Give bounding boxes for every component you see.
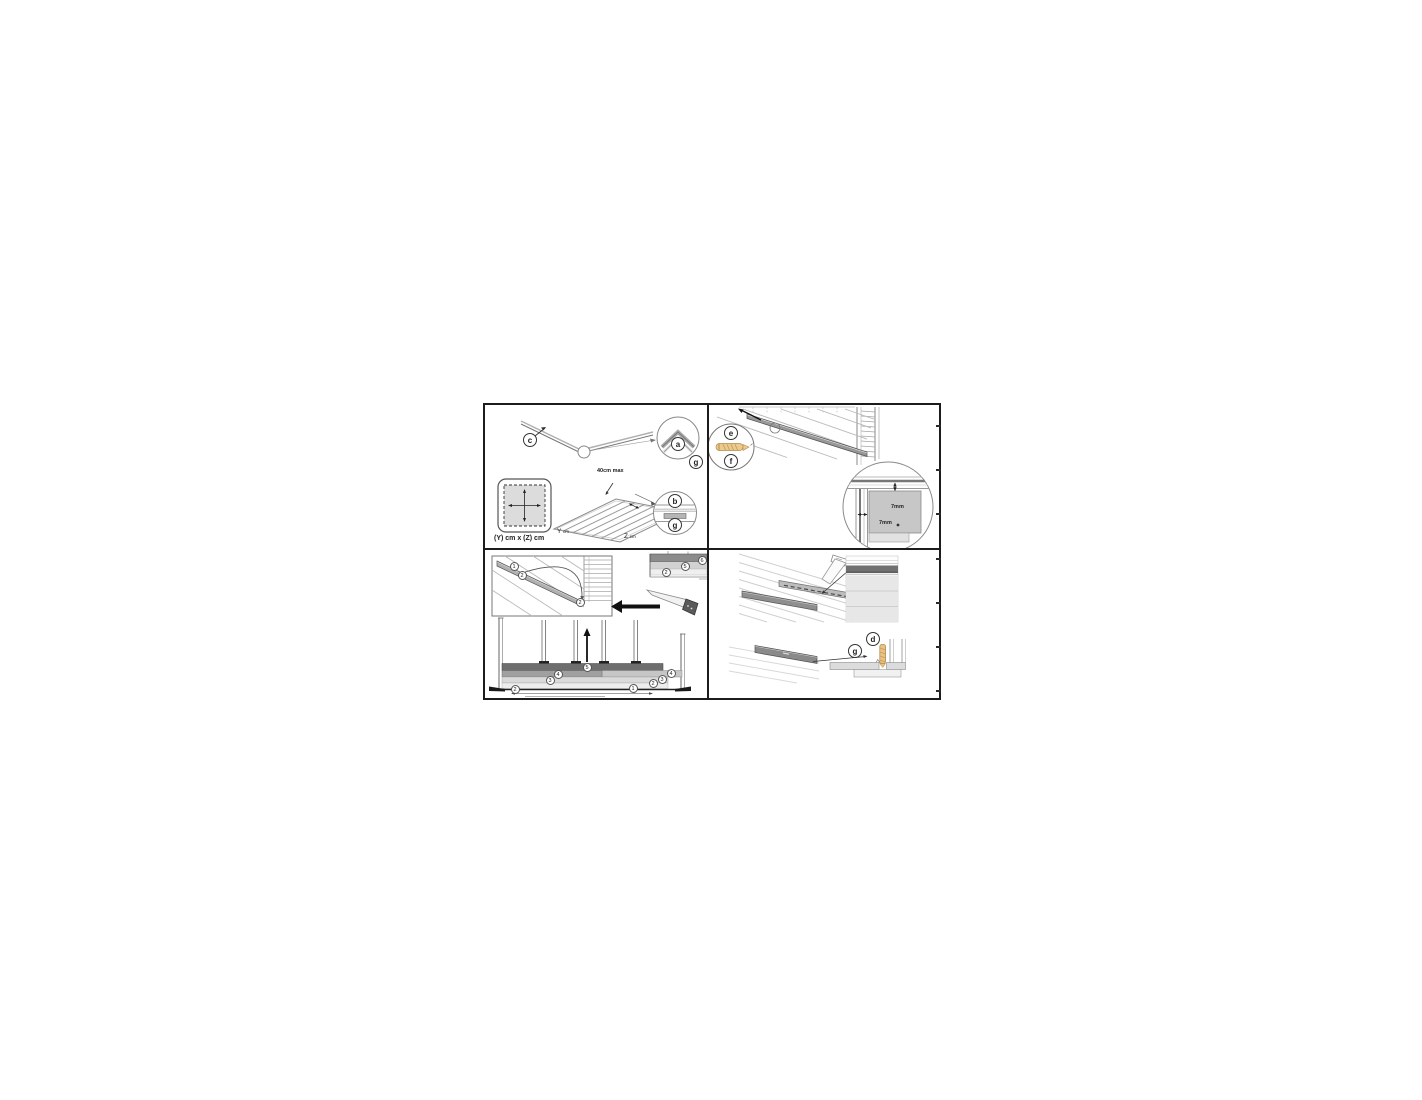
board-number-callout: 4 <box>667 669 676 678</box>
binding-tick <box>936 469 941 471</box>
binding-tick <box>936 690 941 692</box>
board-number-callout: 3 <box>546 676 555 685</box>
elevation-number-5: 5 <box>585 665 588 671</box>
strip-profile-detail <box>846 556 898 622</box>
finishing-strip-drawing <box>709 550 939 698</box>
callout-f: f <box>724 454 738 468</box>
elevation-number-3-left: 3 <box>548 678 551 684</box>
elevation-number-1-right: 1 <box>631 686 634 692</box>
board-number-callout: 2 <box>649 679 658 688</box>
board-number-callout: 1 <box>629 684 638 693</box>
wall-studs <box>542 620 638 663</box>
callout-e: e <box>724 426 738 440</box>
board-number-callout: 6 <box>698 556 707 565</box>
binding-tick <box>936 513 941 515</box>
binding-tick <box>936 646 941 648</box>
callout-g-joist: g <box>668 518 682 532</box>
panel-finishing-strip: g d <box>709 550 939 698</box>
gap-top-label: 7mm <box>891 504 904 510</box>
axis-y-unit: cm <box>563 529 569 534</box>
joist-spacing-note: 40cm max <box>597 468 624 474</box>
callout-e-label: e <box>729 429 733 438</box>
axis-z-letter: Z <box>624 533 628 540</box>
section-number-5: 5 <box>683 564 686 570</box>
callout-g-corner-label: g <box>694 458 699 467</box>
callout-g-corner: g <box>689 455 703 469</box>
callout-c-label: c <box>528 436 532 445</box>
footprint-dimensions-label: (Y) cm x (Z) cm <box>494 535 544 542</box>
elevation-number-3-right: 3 <box>660 677 663 683</box>
axis-z-unit: cm <box>630 534 636 539</box>
board-number-callout: 5 <box>681 562 690 571</box>
footprint-square <box>498 479 551 532</box>
wall-slats <box>861 411 875 457</box>
board-number-callout: 1 <box>510 562 519 571</box>
callout-a: a <box>671 437 685 451</box>
elevation-number-2-left: 2 <box>513 687 516 693</box>
elevation-number-4-left: 4 <box>556 672 559 678</box>
callout-a-label: a <box>676 440 680 449</box>
elevation-number-2-right: 2 <box>651 681 654 687</box>
section-number-2: 2 <box>664 570 667 576</box>
binding-tick <box>936 425 941 427</box>
gap-detail-circle <box>843 462 933 548</box>
callout-b: b <box>668 494 682 508</box>
binding-tick <box>936 602 941 604</box>
assembly-instructions-figure: c a g b g 40cm max (Y) cm x (Z) cm Y cm … <box>483 403 941 700</box>
callout-g: g <box>848 644 862 658</box>
callout-d: d <box>866 632 880 646</box>
panel-floorboard-installation: 1 2 2 2 5 6 5 4 4 3 3 2 1 2 <box>485 550 707 698</box>
scanned-instruction-page: c a g b g 40cm max (Y) cm x (Z) cm Y cm … <box>0 0 1422 1100</box>
board-number-callout: 2 <box>576 598 585 607</box>
screw-fixing-section <box>830 639 906 677</box>
iso-number-2b: 2 <box>578 600 581 606</box>
axis-y-label: Y cm <box>557 528 569 535</box>
push-arrow <box>622 605 660 609</box>
iso-number-2: 2 <box>520 573 523 579</box>
floor-elevation <box>489 618 691 696</box>
panel-first-floorboard: e f 7mm 7mm <box>709 405 939 548</box>
board-number-callout: 2 <box>518 571 527 580</box>
callout-g-label: g <box>853 647 858 656</box>
section-number-6: 6 <box>700 558 703 564</box>
saw-blade <box>822 559 846 584</box>
callout-d-label: d <box>871 635 876 644</box>
panel-base-frame: c a g b g 40cm max (Y) cm x (Z) cm Y cm … <box>485 405 707 548</box>
callout-g-joist-label: g <box>673 521 678 530</box>
board-number-callout: 3 <box>658 675 667 684</box>
floor-panel-section <box>869 491 921 533</box>
lift-arrow <box>584 628 591 636</box>
board-number-callout: 5 <box>583 663 592 672</box>
gap-side-label: 7mm <box>879 520 892 526</box>
axis-z-label: Z cm <box>624 533 636 540</box>
callout-f-label: f <box>730 457 733 466</box>
elevation-number-4-right: 4 <box>669 671 672 677</box>
callout-b-label: b <box>673 497 678 506</box>
iso-number-1: 1 <box>512 564 515 570</box>
callout-c: c <box>523 433 537 447</box>
first-floorboard-drawing <box>709 405 939 548</box>
edge-section-detail <box>650 551 707 579</box>
board-number-callout: 2 <box>511 685 520 694</box>
binding-tick <box>936 558 941 560</box>
saw-icon <box>647 590 698 615</box>
board-number-callout: 4 <box>554 670 563 679</box>
axis-y-letter: Y <box>557 528 561 535</box>
board-number-callout: 2 <box>662 568 671 577</box>
corner-bearers <box>521 421 656 458</box>
